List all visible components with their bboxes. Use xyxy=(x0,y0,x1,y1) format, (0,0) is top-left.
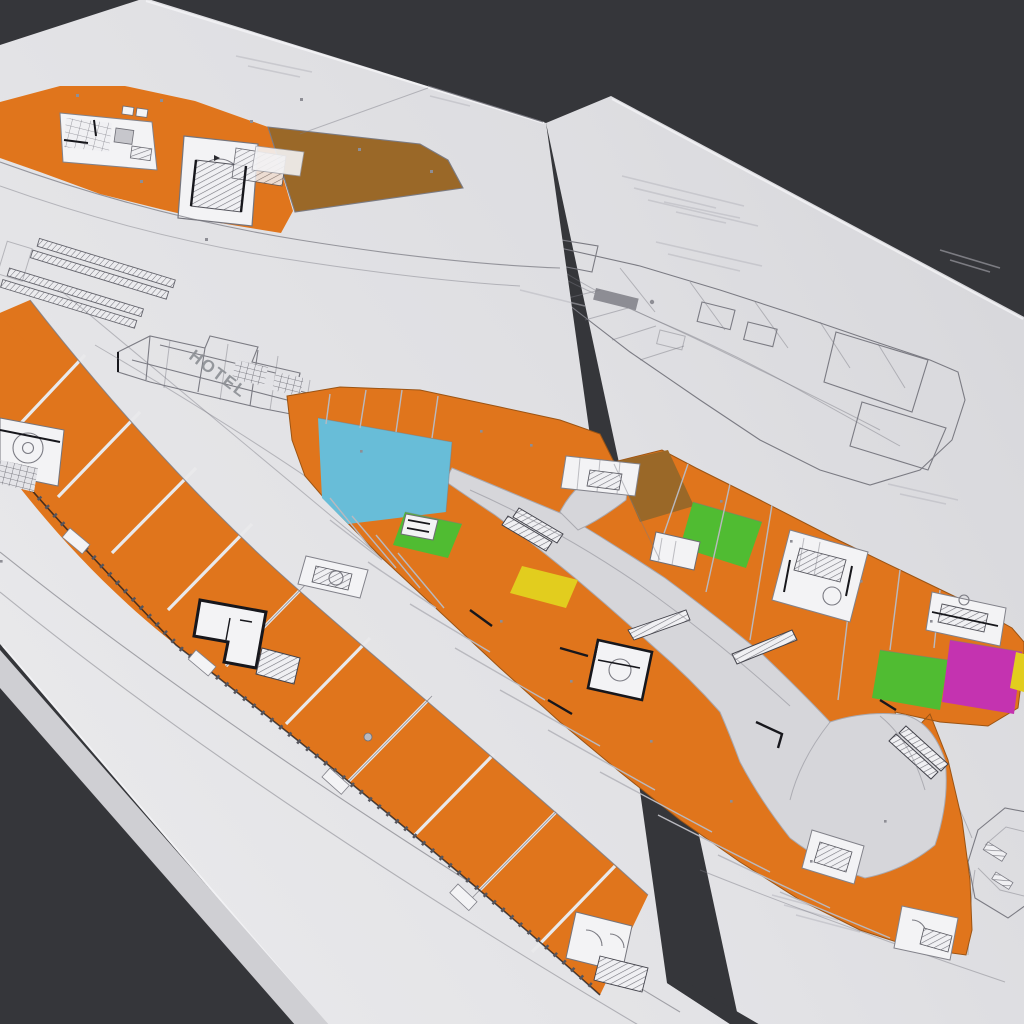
drawing-detail xyxy=(930,620,933,623)
drawing-detail xyxy=(884,820,887,823)
drawing-detail xyxy=(0,560,3,563)
plan-viewport: HOTEL xyxy=(0,0,1024,1024)
drawing-detail xyxy=(76,94,79,97)
upper-plan-kiosk-b xyxy=(136,108,148,117)
drawing-detail xyxy=(720,500,723,503)
drawing-detail xyxy=(587,470,622,490)
drawing-detail xyxy=(300,98,303,101)
drawing-detail xyxy=(790,540,793,543)
drawing-detail xyxy=(650,740,653,743)
drawing-detail xyxy=(860,580,863,583)
upper-plan-kiosk-a xyxy=(122,106,134,115)
drawing-detail xyxy=(588,640,652,700)
drawing-detail xyxy=(430,170,433,173)
drawing-detail xyxy=(140,180,143,183)
drawing-detail xyxy=(250,120,253,123)
strip-knob xyxy=(364,733,372,741)
zone-magenta xyxy=(942,640,1022,714)
drawing-detail xyxy=(730,800,733,803)
drawing-detail xyxy=(358,148,361,151)
drawing-detail xyxy=(570,680,573,683)
wedge-column-dot xyxy=(650,300,654,304)
drawing-detail xyxy=(530,444,533,447)
drawing-detail xyxy=(500,620,503,623)
upper-plan-rooms xyxy=(64,118,112,152)
drawing-detail xyxy=(160,99,163,102)
drawing-detail xyxy=(810,860,813,863)
upper-plan-stair-a xyxy=(130,146,151,161)
drawing-detail xyxy=(480,430,483,433)
upper-plan-room-a xyxy=(114,128,134,144)
strip-ramp-cluster xyxy=(0,418,64,492)
drawing-detail xyxy=(205,238,208,241)
drawing-detail xyxy=(360,450,363,453)
